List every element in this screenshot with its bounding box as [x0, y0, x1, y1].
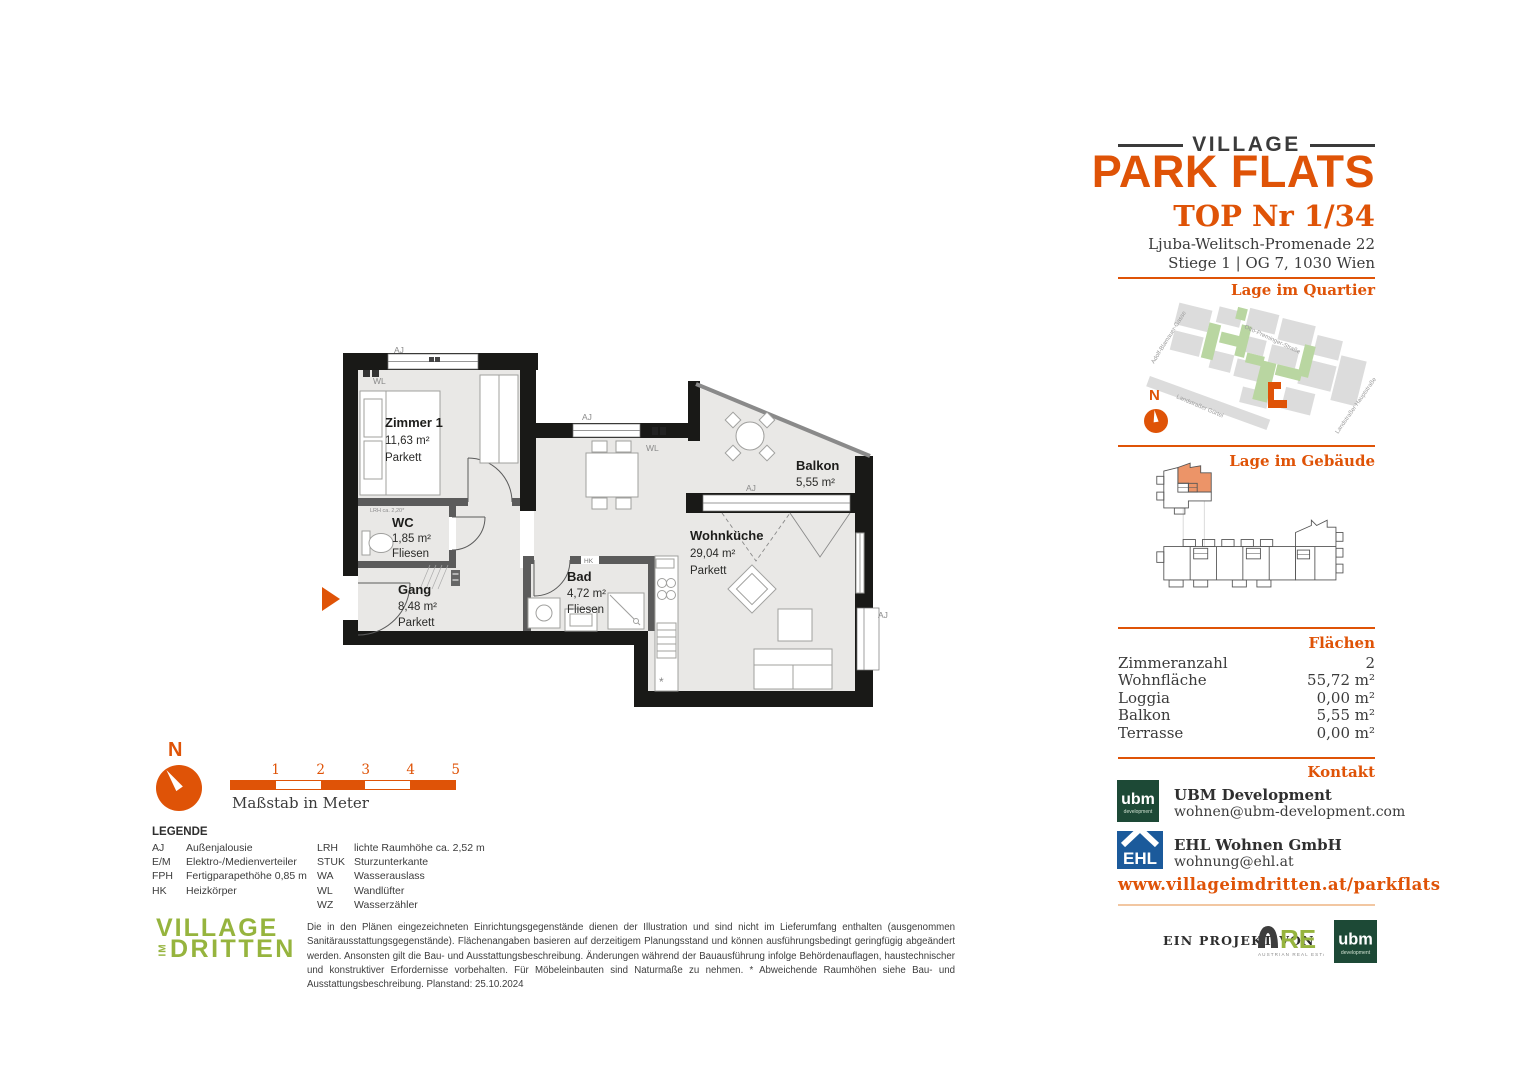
legend-text: Wasserauslass — [354, 869, 425, 883]
divider — [1118, 757, 1375, 759]
room-area: 11,63 m² — [385, 435, 430, 447]
table-row: Balkon 5,55 m² — [1118, 707, 1375, 724]
room-name: Gang — [398, 582, 431, 597]
section-kontakt-heading: Kontakt — [1040, 763, 1375, 781]
room-floor: Parkett — [690, 565, 727, 577]
area-label: Loggia — [1118, 690, 1170, 707]
legend-item: WZWasserzähler — [317, 898, 485, 912]
floorplan-sheet: VILLAGE PARK FLATS TOP Nr 1/34 Ljuba-Wel… — [0, 0, 1528, 1080]
room-area: 5,55 m² — [796, 477, 835, 489]
legend-abbr: FPH — [152, 869, 186, 883]
wl-label: WL — [646, 443, 659, 453]
legend-text: lichte Raumhöhe ca. 2,52 m — [354, 841, 485, 855]
legend-item: WLWandlüfter — [317, 884, 485, 898]
unit-title: TOP Nr 1/34 — [1040, 199, 1375, 233]
village-logo-dritten: DRITTEN — [170, 939, 296, 960]
north-label: N — [168, 739, 182, 761]
village-im-dritten-logo: VILLAGE IM DRITTEN — [156, 918, 296, 960]
section-flaechen-heading: Flächen — [1040, 634, 1375, 652]
address-line1: Ljuba-Welitsch-Promenade 22 — [1040, 235, 1375, 253]
disclaimer-text: Die in den Plänen eingezeichneten Einric… — [307, 921, 955, 992]
tick-label: 3 — [325, 762, 370, 778]
ubm-logo-text: ubm — [1121, 791, 1155, 808]
scalebar-ticks: 1 2 3 4 5 — [230, 762, 455, 778]
room-floor: Parkett — [398, 617, 435, 629]
ubm-email[interactable]: wohnen@ubm-development.com — [1174, 804, 1405, 821]
area-value: 0,00 m² — [1317, 725, 1375, 742]
legend-abbr: LRH — [317, 841, 354, 855]
legend-item: HKHeizkörper — [152, 884, 307, 898]
entrance-arrow-icon — [322, 587, 340, 611]
room-area: 4,72 m² — [567, 588, 606, 600]
section-quartier-heading: Lage im Quartier — [1040, 281, 1375, 299]
quartier-map: Adolf-Blamauer-Gasse Otto-Preminger-Stra… — [1140, 298, 1380, 440]
ubm-footer-logo-text: ubm — [1338, 931, 1373, 949]
divider-soft — [1118, 904, 1375, 906]
ehl-logo: EHL — [1117, 823, 1163, 869]
aj-label: AJ — [746, 483, 756, 493]
legend-abbr: WZ — [317, 898, 354, 912]
tick-label: 5 — [415, 762, 460, 778]
divider — [1118, 627, 1375, 629]
legend-text: Fertigparapethöhe 0,85 m — [186, 869, 307, 883]
ehl-email[interactable]: wohnung@ehl.at — [1174, 854, 1342, 871]
hk-label: HK — [584, 558, 594, 565]
wl-label: WL — [373, 376, 386, 386]
ubm-logo: ubm development — [1117, 780, 1159, 822]
aj-label: AJ — [582, 412, 592, 422]
ubm-logo-sub: development — [1124, 809, 1153, 815]
legend-abbr: E/M — [152, 855, 186, 869]
areas-table: Zimmeranzahl 2 Wohnfläche 55,72 m² Loggi… — [1118, 655, 1375, 742]
ehl-name: EHL Wohnen GmbH — [1174, 837, 1342, 854]
divider — [1118, 445, 1375, 447]
legend-text: Heizkörper — [186, 884, 237, 898]
legend-abbr: WL — [317, 884, 354, 898]
legend-col1: AJAußenjalousie E/MElektro-/Medienvertei… — [152, 841, 307, 898]
table-row: Loggia 0,00 m² — [1118, 690, 1375, 707]
ubm-contact: UBM Development wohnen@ubm-development.c… — [1174, 787, 1405, 821]
table-row: Wohnfläche 55,72 m² — [1118, 672, 1375, 689]
tick-label: 1 — [235, 762, 280, 778]
are-logo: RE AUSTRIAN REAL ESTATE — [1256, 922, 1324, 960]
room-name: Zimmer 1 — [385, 415, 443, 430]
scalebar-caption: Maßstab in Meter — [232, 794, 369, 812]
north-label: N — [1149, 387, 1160, 404]
brand-parkflats: PARK FLATS — [1040, 146, 1375, 198]
legend-abbr: WA — [317, 869, 354, 883]
area-label: Balkon — [1118, 707, 1171, 724]
room-name: Balkon — [796, 458, 839, 473]
legend-title: LEGENDE — [152, 826, 208, 838]
legend-item: STUKSturzunterkante — [317, 855, 485, 869]
ubm-name: UBM Development — [1174, 787, 1405, 804]
area-label: Terrasse — [1118, 725, 1183, 742]
aj-label: AJ — [394, 345, 404, 355]
tick-label: 2 — [280, 762, 325, 778]
floor-plan: AJ WL AJ WL AJ AJ HK LRH ca. 2,20* * Zim… — [318, 343, 898, 718]
table-row: Terrasse 0,00 m² — [1118, 725, 1375, 742]
legend-item: LRHlichte Raumhöhe ca. 2,52 m — [317, 841, 485, 855]
area-label: Wohnfläche — [1118, 672, 1207, 689]
legend-text: Wandlüfter — [354, 884, 404, 898]
room-floor: Fliesen — [392, 548, 429, 560]
room-name: Wohnküche — [690, 528, 763, 543]
table-row: Zimmeranzahl 2 — [1118, 655, 1375, 672]
are-logo-sub: AUSTRIAN REAL ESTATE — [1258, 952, 1324, 957]
legend-item: E/MElektro-/Medienverteiler — [152, 855, 307, 869]
area-label: Zimmeranzahl — [1118, 655, 1228, 672]
room-name: Bad — [567, 569, 592, 584]
legend-item: FPHFertigparapethöhe 0,85 m — [152, 869, 307, 883]
village-logo-im: IM — [153, 943, 174, 957]
legend-abbr: AJ — [152, 841, 186, 855]
tick-label: 4 — [370, 762, 415, 778]
room-floor: Parkett — [385, 452, 422, 464]
ehl-contact: EHL Wohnen GmbH wohnung@ehl.at — [1174, 837, 1342, 871]
legend-abbr: HK — [152, 884, 186, 898]
scalebar — [230, 780, 456, 790]
ubm-footer-logo: ubm development — [1334, 920, 1377, 963]
legend-text: Sturzunterkante — [354, 855, 428, 869]
room-height-annotation: LRH ca. 2,20* — [370, 508, 405, 514]
room-name: WC — [392, 515, 414, 530]
village-logo-line2: IM DRITTEN — [156, 939, 296, 960]
legend-abbr: STUK — [317, 855, 354, 869]
legend-col2: LRHlichte Raumhöhe ca. 2,52 m STUKSturzu… — [317, 841, 485, 912]
legend-text: Wasserzähler — [354, 898, 418, 912]
website-link[interactable]: www.villageimdritten.at/parkflats — [1118, 875, 1375, 894]
ubm-footer-logo-sub: development — [1341, 950, 1371, 956]
compass-main: N — [150, 736, 212, 816]
room-area: 1,85 m² — [392, 533, 431, 545]
compass-small: N — [1140, 386, 1174, 436]
area-value: 2 — [1365, 655, 1375, 672]
area-value: 0,00 m² — [1317, 690, 1375, 707]
are-logo-text: RE — [1280, 924, 1316, 954]
divider — [1118, 277, 1375, 279]
legend-item: WAWasserauslass — [317, 869, 485, 883]
ehl-logo-text: EHL — [1123, 849, 1157, 868]
building-plan — [1148, 450, 1350, 608]
legend-item: AJAußenjalousie — [152, 841, 307, 855]
highlighted-building — [1268, 382, 1287, 408]
aj-label: AJ — [878, 610, 888, 620]
room-area: 8,48 m² — [398, 601, 437, 613]
address-line2: Stiege 1 | OG 7, 1030 Wien — [1040, 254, 1375, 272]
are-arch-icon — [1258, 926, 1278, 948]
legend-text: Außenjalousie — [186, 841, 253, 855]
legend-text: Elektro-/Medienverteiler — [186, 855, 297, 869]
area-value: 5,55 m² — [1317, 707, 1375, 724]
area-value: 55,72 m² — [1307, 672, 1375, 689]
room-area: 29,04 m² — [690, 548, 736, 560]
wa-symbol: * — [659, 675, 664, 689]
room-floor: Fliesen — [567, 604, 604, 616]
